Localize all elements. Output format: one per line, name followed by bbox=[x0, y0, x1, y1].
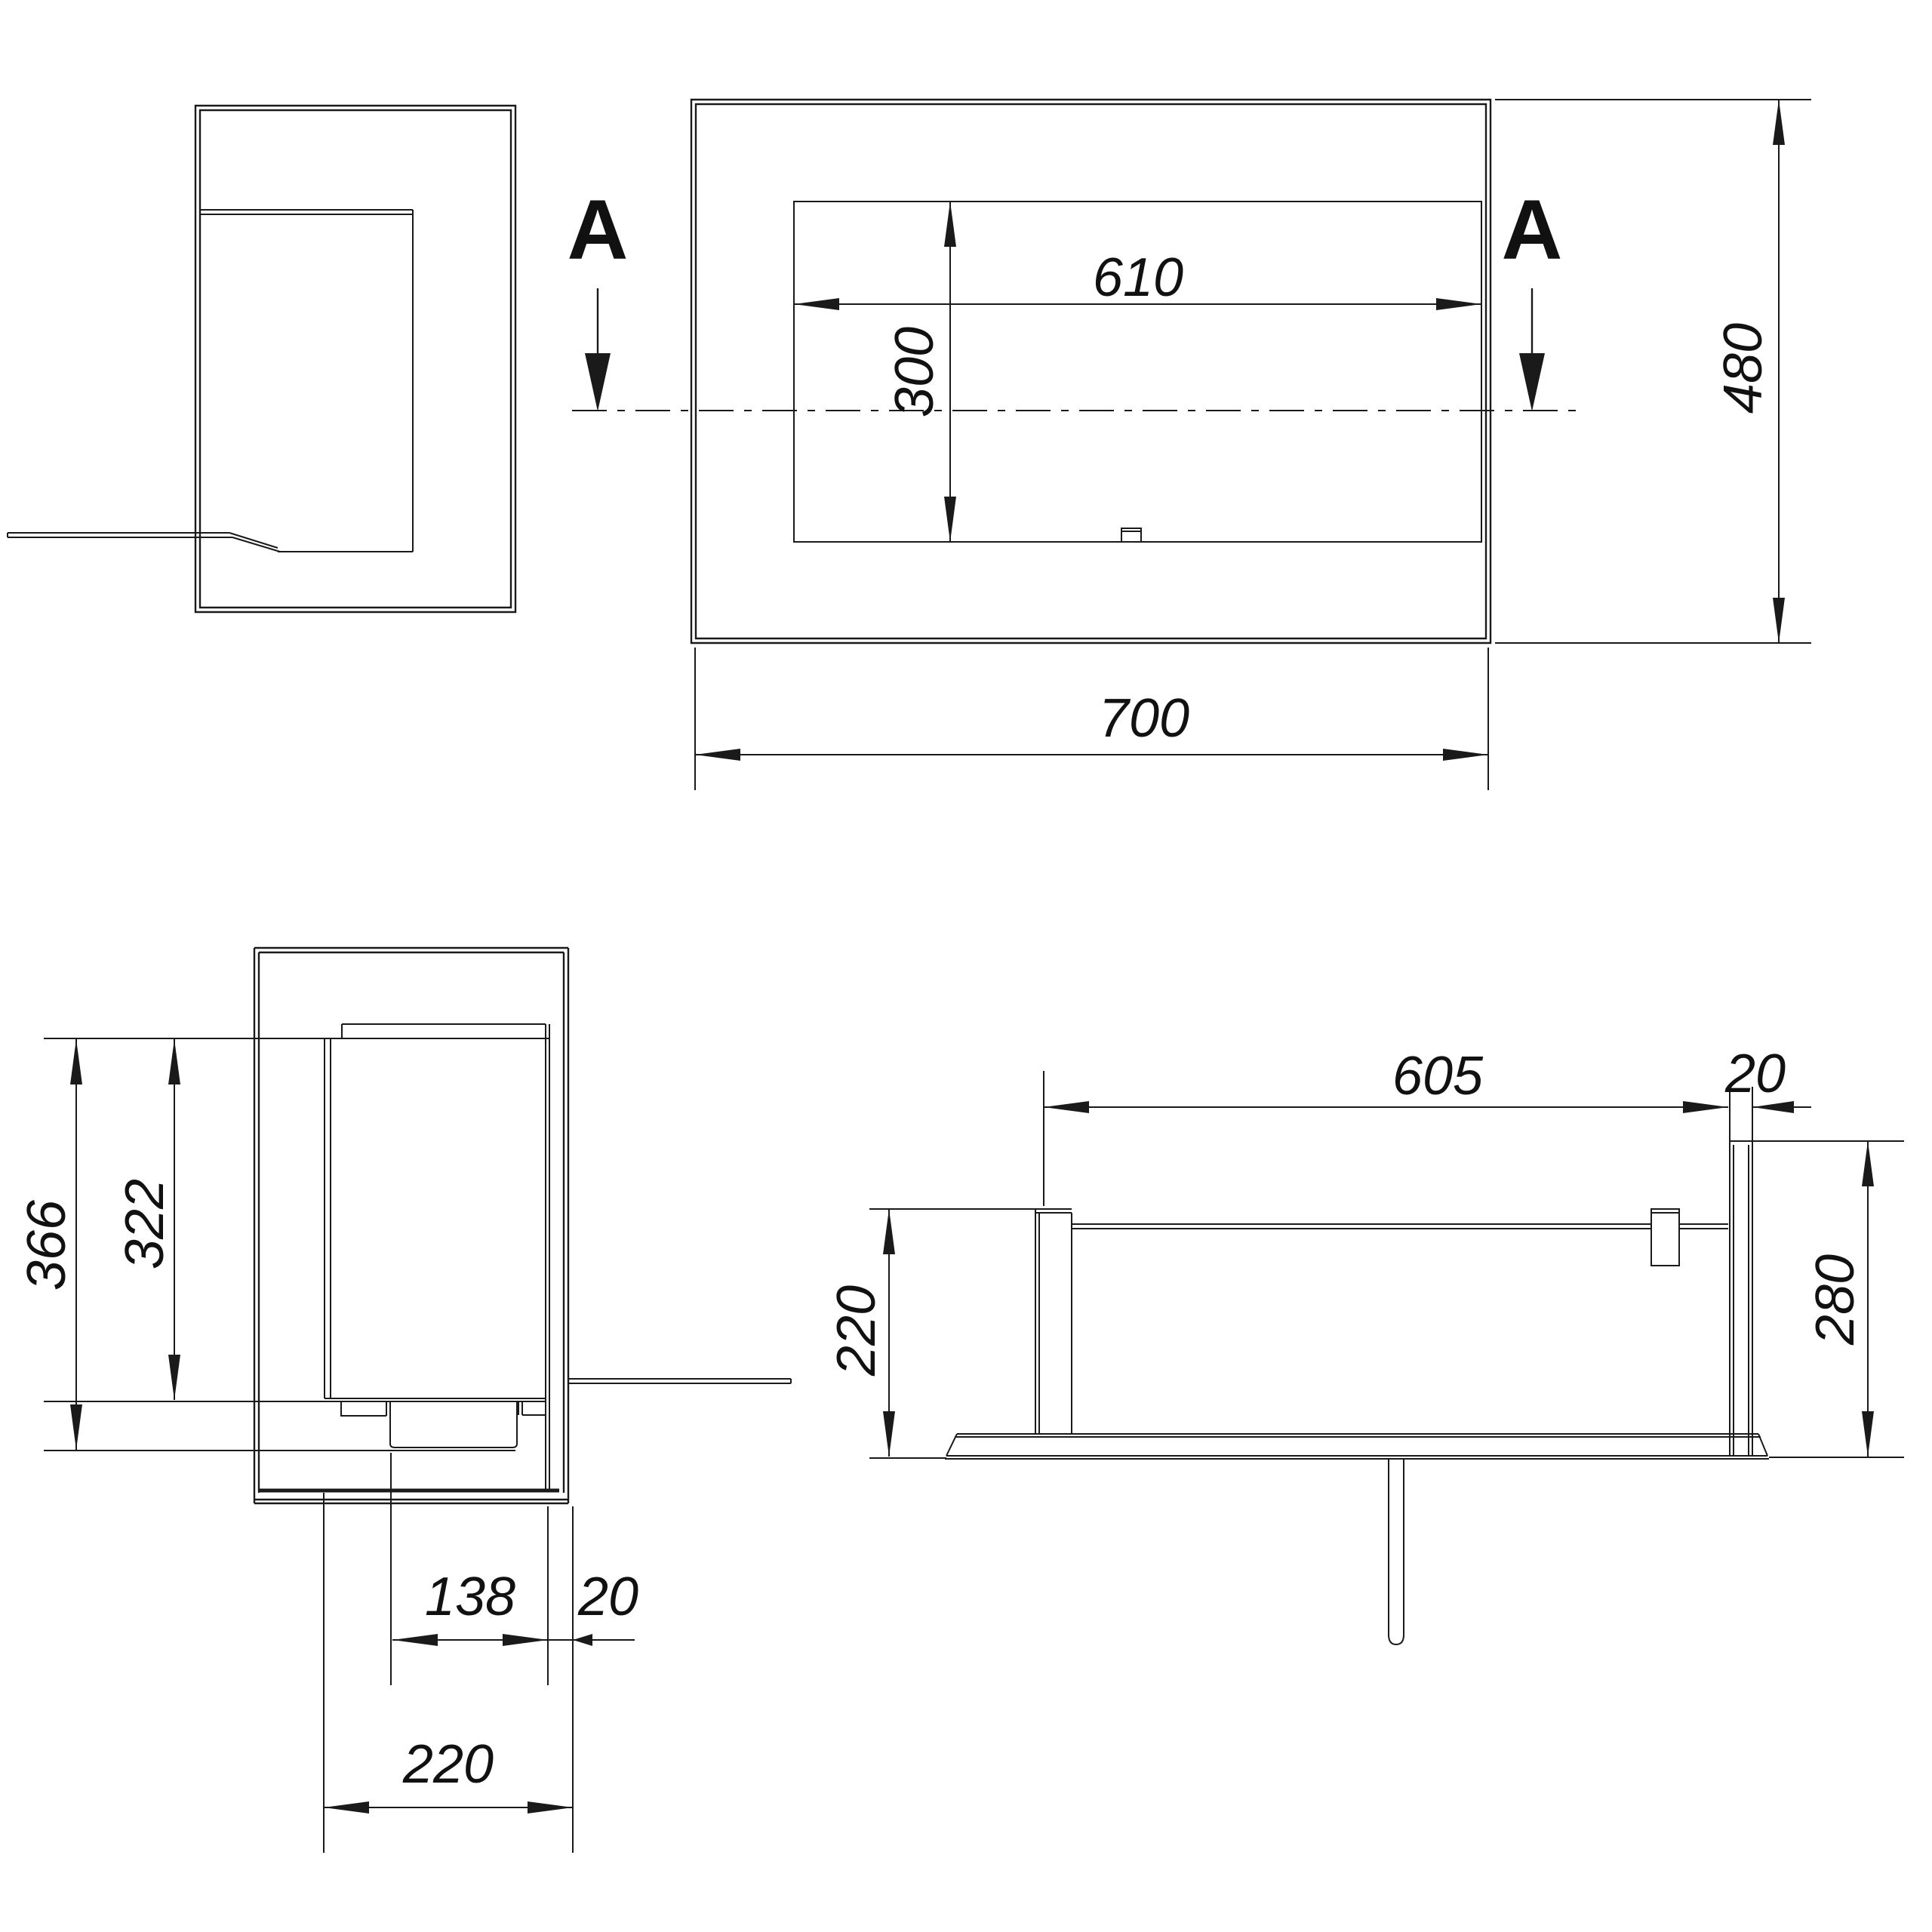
plan-back-wall bbox=[1072, 1224, 1728, 1229]
dim-inner-width: 605 bbox=[1044, 1046, 1728, 1206]
dim-overall-height: 480 bbox=[1495, 100, 1811, 643]
dim-300-label: 300 bbox=[884, 327, 945, 417]
dim-edge-offset: 20 bbox=[573, 1567, 638, 1646]
side-view-handle-rod bbox=[8, 533, 280, 552]
dim-overall-inner-height: 366 bbox=[17, 1039, 82, 1450]
section-outer-shell bbox=[254, 948, 568, 1503]
plan-left-wall bbox=[1035, 1209, 1072, 1434]
front-view: A A 610 300 700 bbox=[568, 100, 1811, 790]
side-view-glass-panel bbox=[200, 210, 413, 552]
side-view-outer-frame bbox=[195, 106, 515, 612]
section-handle-rod bbox=[568, 1379, 791, 1383]
dim-20p-label: 20 bbox=[1724, 1044, 1786, 1104]
dim-body-depth: 220 bbox=[826, 1209, 1035, 1458]
dim-220-label: 220 bbox=[402, 1734, 494, 1795]
dim-20-arrowhead bbox=[573, 1634, 592, 1646]
side-view bbox=[8, 106, 515, 612]
dim-opening-height: 300 bbox=[884, 202, 956, 542]
section-arrowhead-right bbox=[1519, 353, 1545, 411]
section-arrowhead-left bbox=[585, 353, 611, 411]
section-marker-right: A bbox=[1502, 183, 1563, 411]
section-burner-tray bbox=[44, 1401, 546, 1451]
dim-610-label: 610 bbox=[1093, 248, 1183, 308]
plan-right-glass-panel bbox=[1730, 1141, 1752, 1456]
section-marker-left: A bbox=[568, 183, 629, 411]
plan-front-glass-panel bbox=[945, 1434, 1769, 1459]
plan-mounting-bracket bbox=[1651, 1209, 1679, 1266]
dim-480-label: 480 bbox=[1713, 323, 1774, 414]
section-letter-left: A bbox=[568, 183, 629, 277]
dim-280-label: 280 bbox=[1805, 1254, 1866, 1346]
front-view-frame bbox=[691, 100, 1491, 643]
dim-opening-width: 610 bbox=[794, 248, 1481, 310]
dim-322-label: 322 bbox=[115, 1179, 175, 1269]
dim-220-extension-lines bbox=[324, 1493, 573, 1853]
dim-side-panel-depth: 280 bbox=[1752, 1141, 1904, 1457]
dim-138-label: 138 bbox=[425, 1567, 515, 1627]
technical-drawing-page: A A 610 300 700 bbox=[0, 0, 1932, 1932]
dim-depth: 220 bbox=[324, 1493, 573, 1853]
dim-605-label: 605 bbox=[1392, 1046, 1484, 1106]
dim-panel-thickness: 20 bbox=[1724, 1044, 1811, 1141]
dim-overall-width: 700 bbox=[695, 648, 1488, 790]
dim-700-label: 700 bbox=[1099, 688, 1189, 749]
dim-220p-label: 220 bbox=[826, 1285, 887, 1377]
dim-366-label: 366 bbox=[17, 1199, 77, 1291]
side-section-view: 366 322 138 20 220 bbox=[17, 948, 791, 1853]
section-letter-right: A bbox=[1502, 183, 1563, 277]
dim-chamber-height: 322 bbox=[115, 1039, 180, 1400]
fireplace-orthographic-drawing: A A 610 300 700 bbox=[0, 0, 1932, 1932]
plan-section-view: 605 20 280 220 bbox=[826, 1044, 1904, 1644]
dim-700-extension-lines bbox=[695, 648, 1488, 790]
dim-220p-extension-lines bbox=[869, 1209, 1035, 1458]
dim-20-label: 20 bbox=[577, 1567, 638, 1627]
front-view-burner-slot bbox=[1121, 528, 1141, 543]
plan-handle-rod bbox=[1389, 1459, 1404, 1644]
